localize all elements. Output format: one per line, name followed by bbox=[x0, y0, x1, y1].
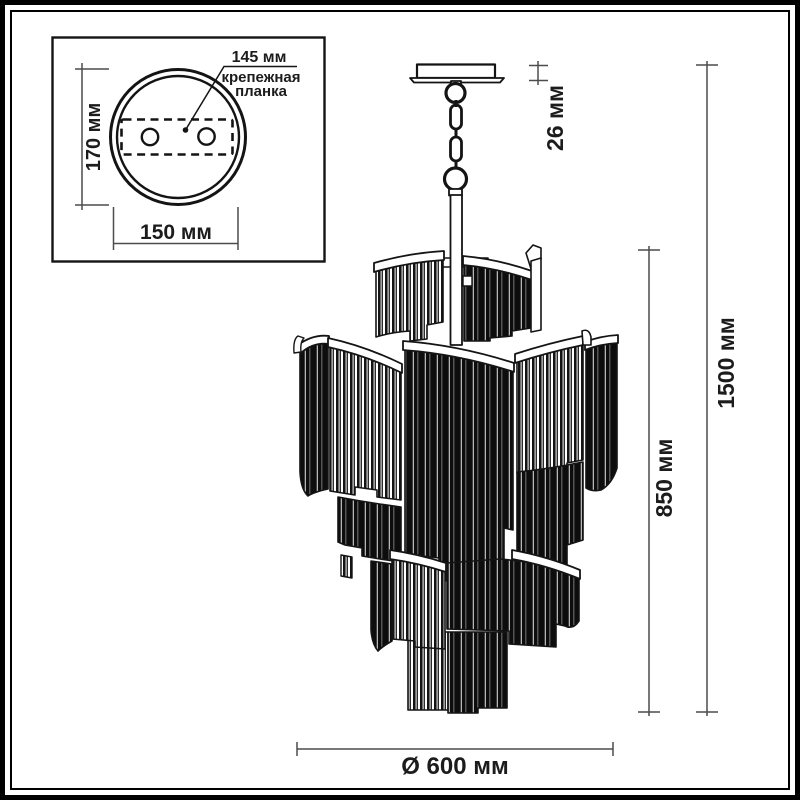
dim-body-height-label: 850 мм bbox=[651, 439, 677, 518]
mounting-view-inset: 145 мм крепежная планка 170 мм 150 мм bbox=[53, 38, 325, 262]
tier-3-left-shade bbox=[390, 550, 446, 649]
tier-2-right-shade bbox=[515, 330, 591, 479]
chain-ring-top bbox=[446, 84, 465, 103]
dim-total-height-label: 1500 мм bbox=[713, 317, 739, 409]
dimension-drawing-page: 145 мм крепежная планка 170 мм 150 мм bbox=[0, 0, 800, 800]
shade-curl-tip bbox=[582, 330, 591, 345]
dim-bracket-length-label: 145 мм bbox=[232, 49, 287, 66]
dim-bracket-width-label: 150 мм bbox=[140, 221, 212, 244]
tier-2-far-right-shade bbox=[585, 335, 618, 491]
hanging-flute-strip bbox=[341, 555, 352, 578]
chain-ring-bottom bbox=[445, 168, 467, 190]
dim-canopy-diameter-label: 170 мм bbox=[83, 103, 105, 172]
dim-canopy-height-label: 26 мм bbox=[542, 85, 568, 151]
dim-diameter-label: Ø 600 мм bbox=[401, 753, 509, 780]
hanging-rod bbox=[451, 195, 463, 345]
tier-3-far-left-shade bbox=[371, 561, 392, 651]
bracket-label-line2: планка bbox=[235, 83, 287, 100]
tier-2-center-shade bbox=[403, 341, 514, 584]
tier-2-left-shade bbox=[328, 338, 402, 500]
shade-clip bbox=[463, 276, 472, 286]
chandelier-dimension-drawing: 145 мм крепежная планка 170 мм 150 мм bbox=[0, 0, 800, 800]
shade-edge-strip bbox=[531, 258, 541, 332]
